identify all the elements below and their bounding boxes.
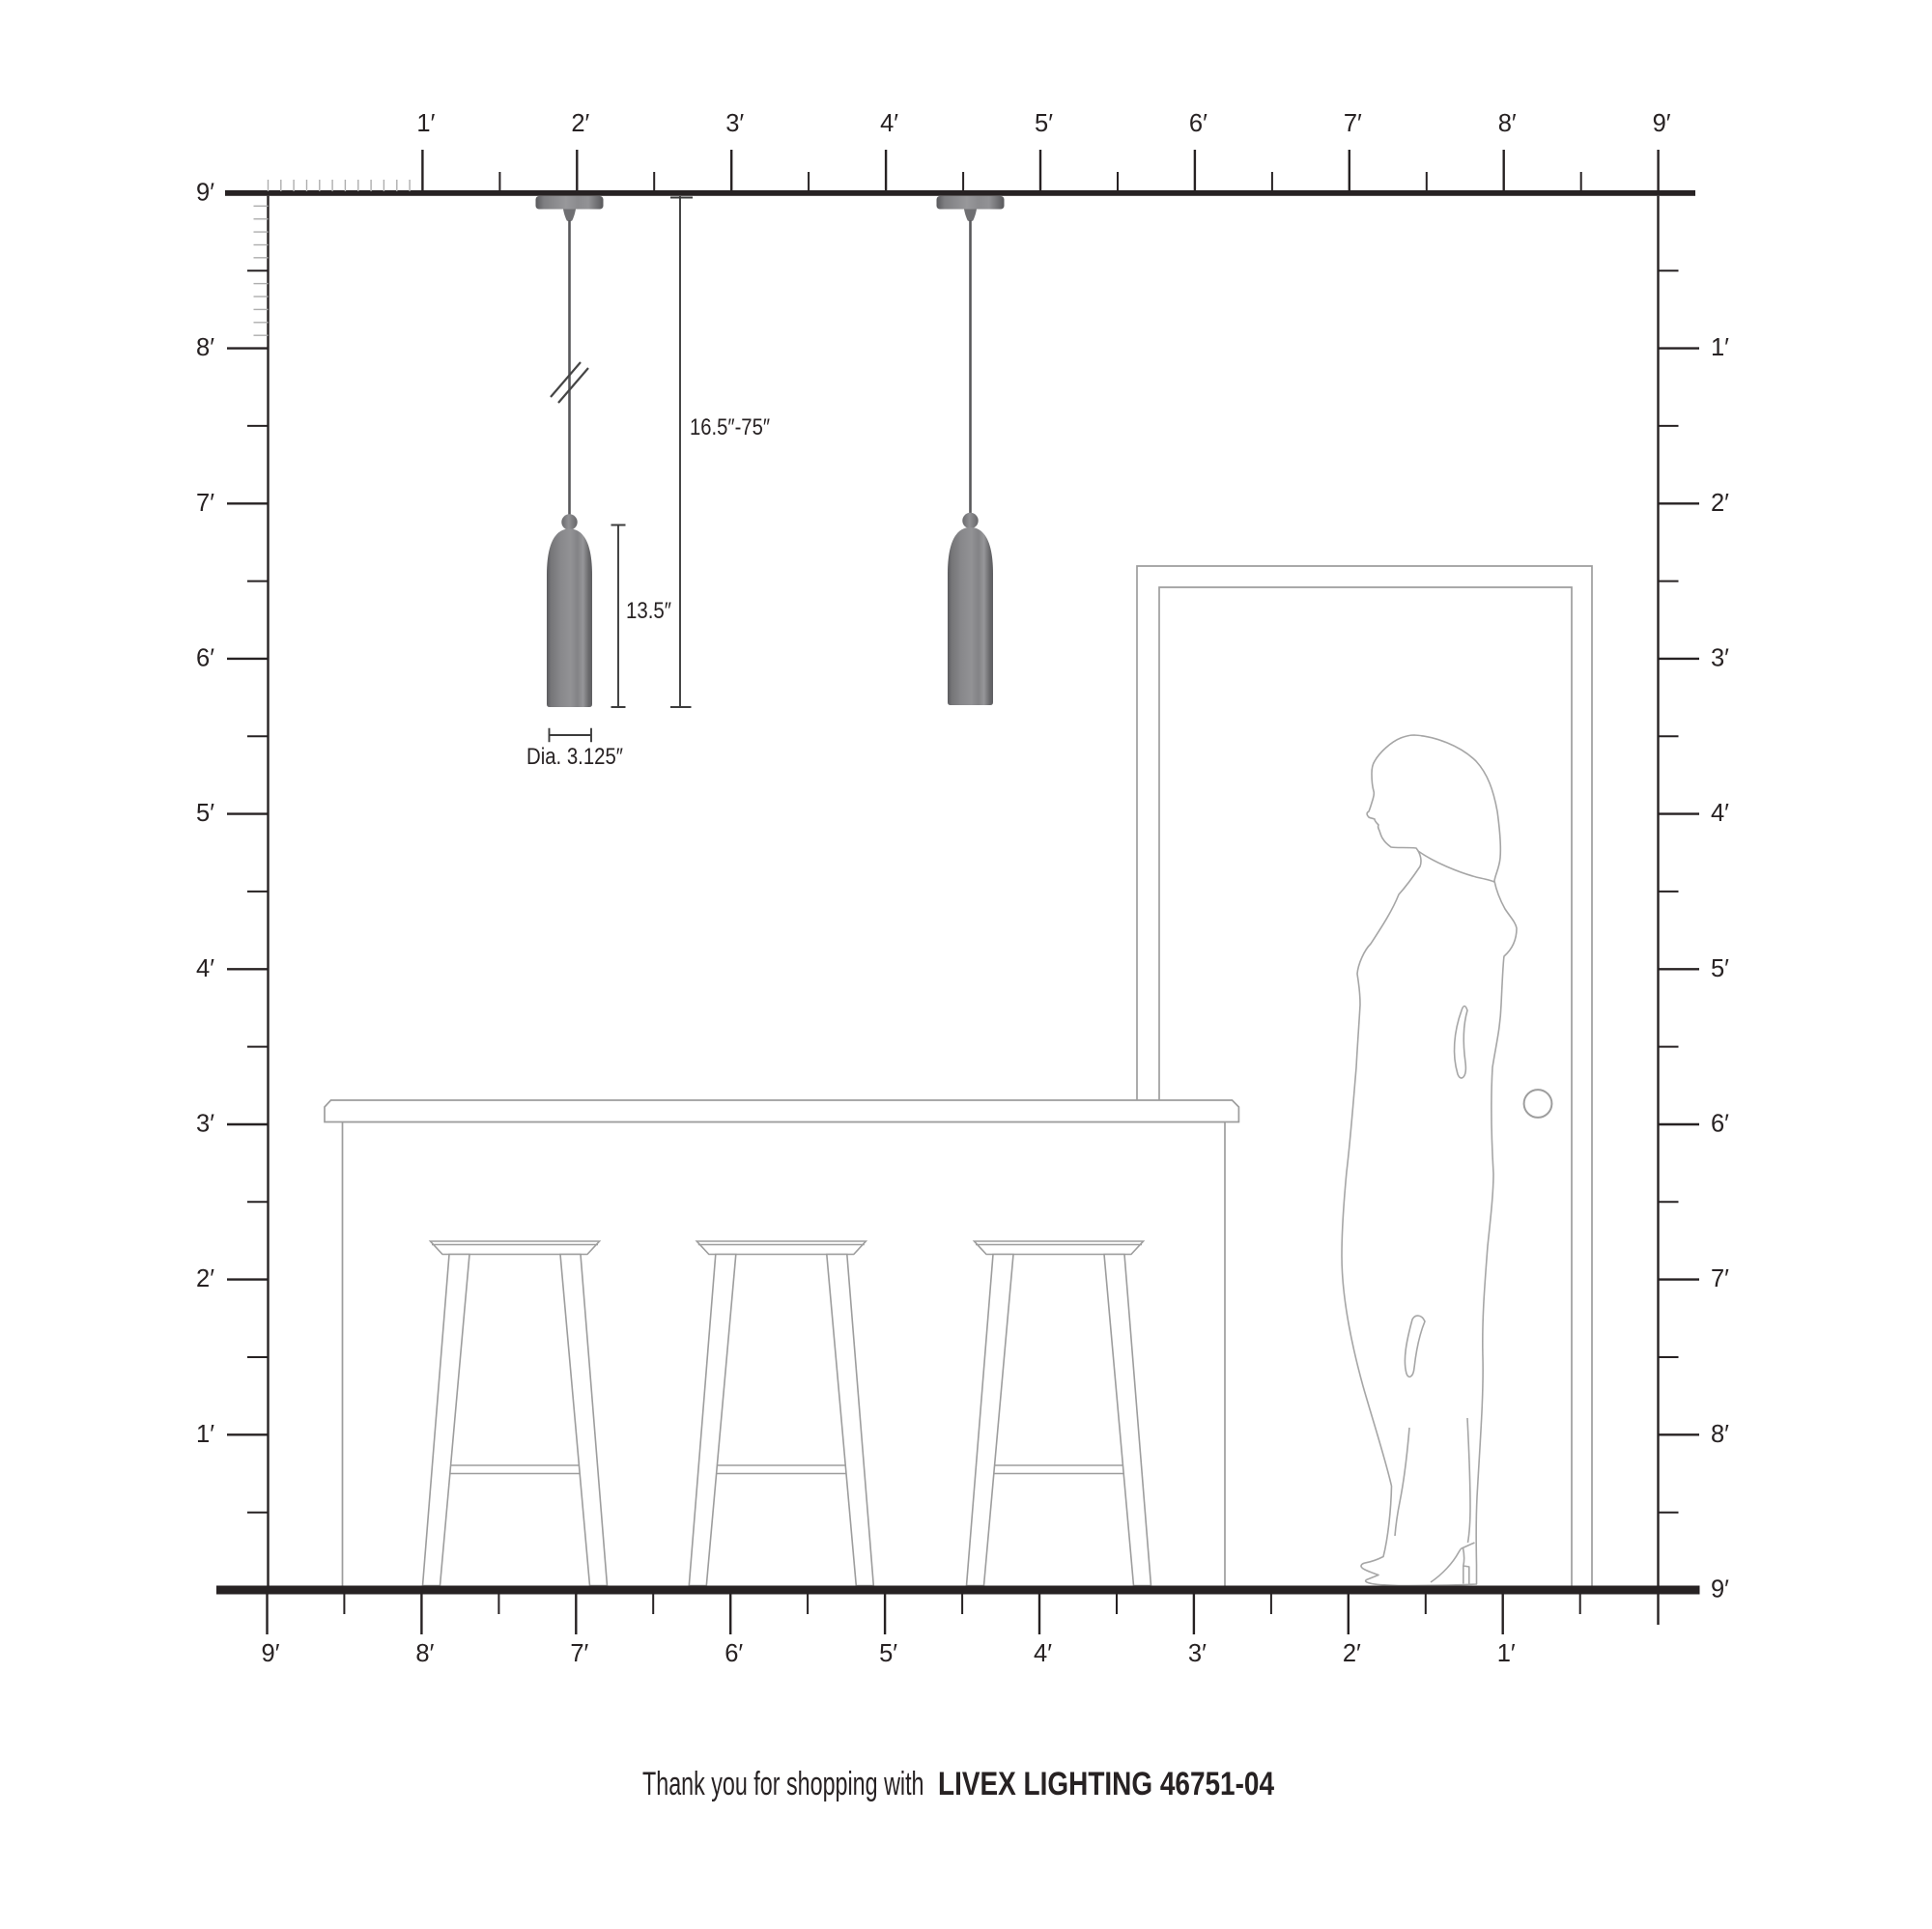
svg-text:1′: 1′ (1497, 1640, 1516, 1667)
svg-text:3′: 3′ (1711, 644, 1729, 671)
svg-text:6′: 6′ (1711, 1111, 1729, 1138)
svg-text:3′: 3′ (196, 1111, 214, 1138)
svg-text:9′: 9′ (1653, 110, 1671, 137)
svg-text:7′: 7′ (1344, 110, 1362, 137)
svg-text:Thank you for shopping with: Thank you for shopping with (642, 1766, 930, 1802)
svg-text:1′: 1′ (416, 110, 435, 137)
svg-text:9′: 9′ (262, 1640, 280, 1667)
svg-text:8′: 8′ (415, 1640, 434, 1667)
svg-text:1′: 1′ (196, 1421, 214, 1448)
svg-text:8′: 8′ (196, 334, 214, 361)
svg-text:5′: 5′ (1035, 110, 1053, 137)
svg-text:8′: 8′ (1498, 110, 1517, 137)
svg-text:4′: 4′ (1711, 800, 1729, 827)
svg-text:9′: 9′ (196, 179, 214, 206)
svg-text:9′: 9′ (1711, 1576, 1729, 1603)
svg-text:2′: 2′ (196, 1265, 214, 1292)
svg-text:1′: 1′ (1711, 334, 1729, 361)
svg-text:4′: 4′ (196, 955, 214, 982)
svg-text:5′: 5′ (879, 1640, 897, 1667)
svg-text:8′: 8′ (1711, 1421, 1729, 1448)
svg-text:7′: 7′ (1711, 1265, 1729, 1292)
svg-text:Dia. 3.125″: Dia. 3.125″ (526, 744, 623, 770)
svg-text:7′: 7′ (570, 1640, 588, 1667)
svg-text:6′: 6′ (724, 1640, 743, 1667)
svg-text:16.5″-75″: 16.5″-75″ (690, 414, 770, 440)
svg-text:3′: 3′ (1188, 1640, 1207, 1667)
svg-text:4′: 4′ (1034, 1640, 1052, 1667)
svg-text:13.5″: 13.5″ (626, 598, 671, 624)
svg-text:5′: 5′ (1711, 955, 1729, 982)
svg-text:3′: 3′ (725, 110, 744, 137)
svg-text:2′: 2′ (1711, 490, 1729, 517)
svg-text:6′: 6′ (1189, 110, 1207, 137)
svg-text:7′: 7′ (196, 490, 214, 517)
svg-text:4′: 4′ (880, 110, 898, 137)
svg-text:LIVEX LIGHTING 46751-04: LIVEX LIGHTING 46751-04 (938, 1766, 1274, 1802)
svg-text:6′: 6′ (196, 644, 214, 671)
svg-text:2′: 2′ (1343, 1640, 1361, 1667)
svg-text:2′: 2′ (571, 110, 589, 137)
svg-text:5′: 5′ (196, 800, 214, 827)
